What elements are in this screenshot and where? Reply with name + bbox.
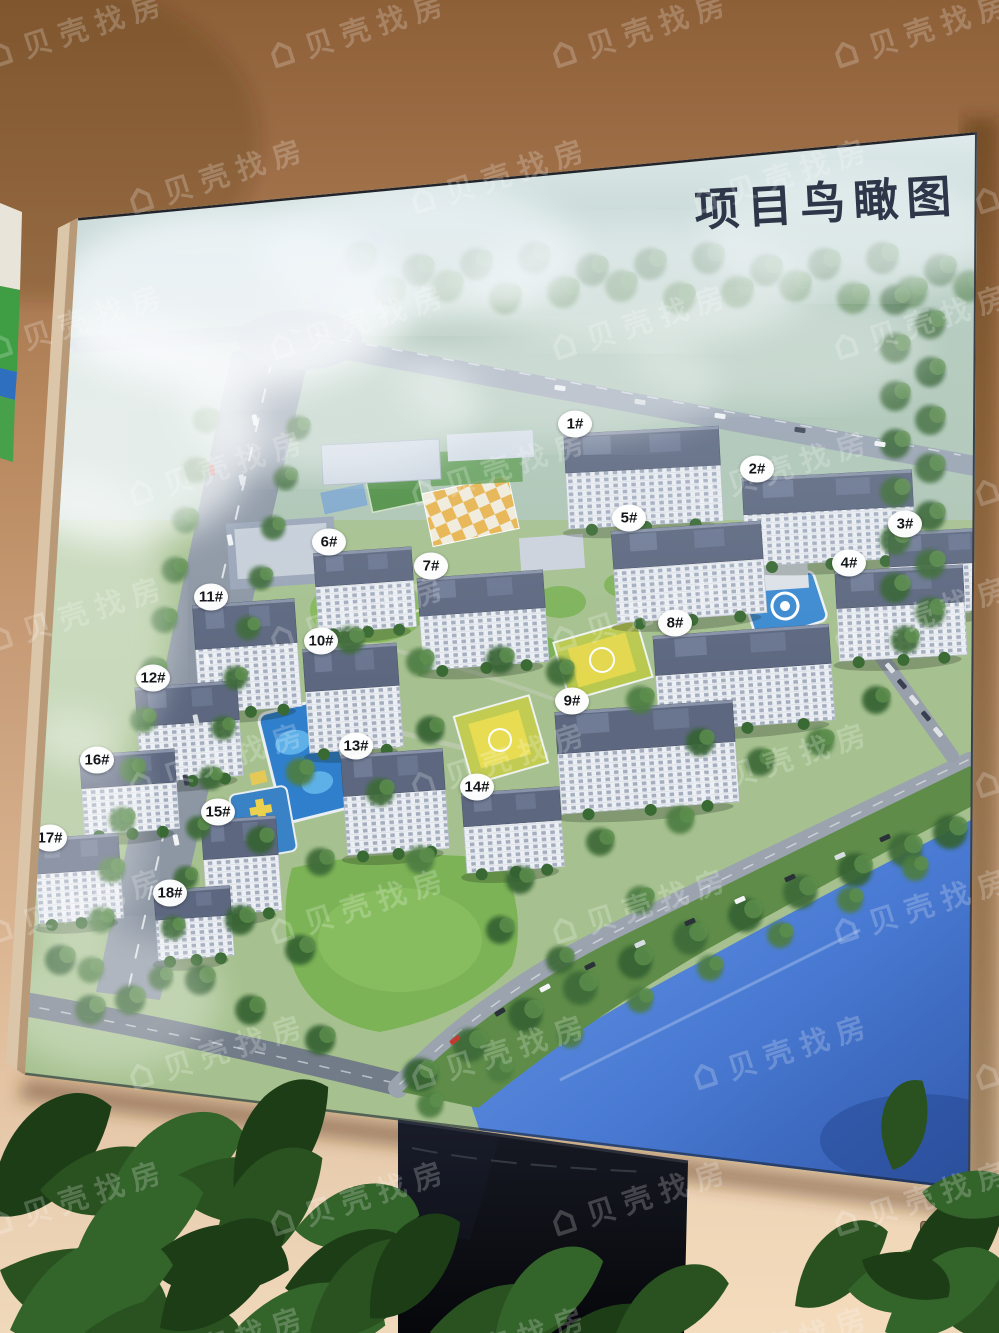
photo-stage: 项目鸟瞰图 1#2#3#4#5#6#7#8#9#10#11#12#13#14#1… xyxy=(0,0,999,1333)
foreground xyxy=(0,0,999,1333)
